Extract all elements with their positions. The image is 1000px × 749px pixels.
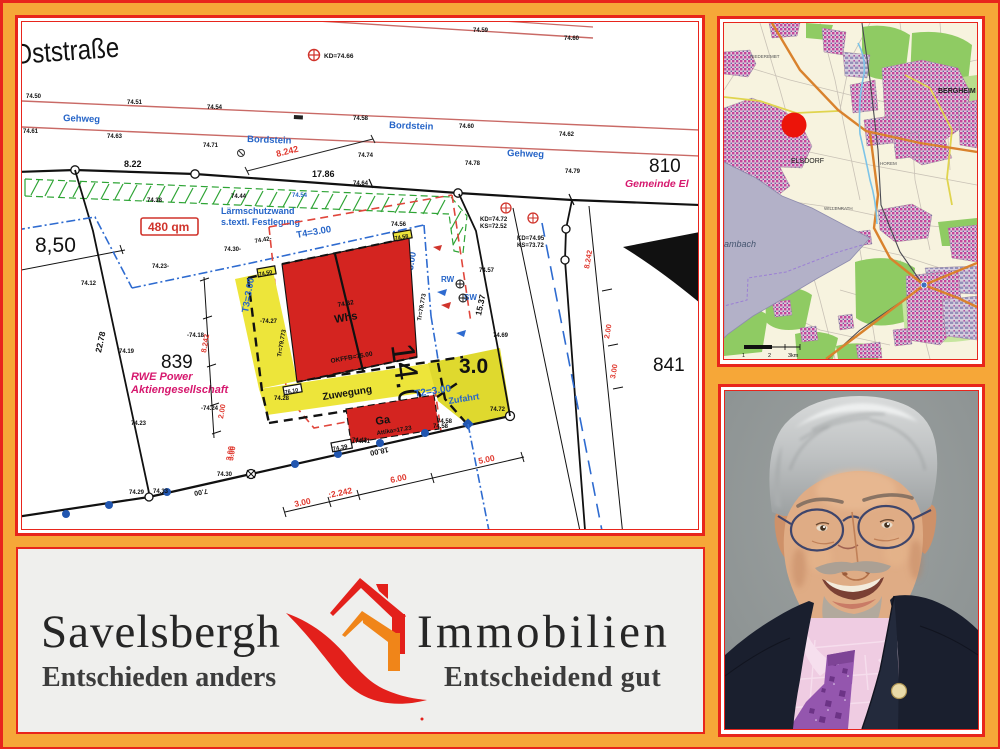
svg-text:HOREM: HOREM <box>880 161 897 166</box>
svg-text:74.72: 74.72 <box>490 407 506 413</box>
svg-text:74.71: 74.71 <box>203 143 219 149</box>
svg-text:KD=74.72: KD=74.72 <box>480 217 508 223</box>
svg-text:74.28: 74.28 <box>274 396 290 402</box>
svg-text:BERGHEIM: BERGHEIM <box>938 88 976 95</box>
svg-text:8.22: 8.22 <box>124 159 142 169</box>
svg-text:74.33: 74.33 <box>153 489 169 495</box>
svg-text:480 qm: 480 qm <box>148 220 189 234</box>
svg-text:s.textl. Festlegung: s.textl. Festlegung <box>221 217 300 227</box>
svg-text:17.86: 17.86 <box>312 169 335 179</box>
svg-text:74.54: 74.54 <box>207 105 223 111</box>
svg-text:74.30: 74.30 <box>217 472 233 478</box>
svg-text:ambach: ambach <box>724 239 756 249</box>
svg-text:839: 839 <box>161 352 193 373</box>
svg-text:RWE Power: RWE Power <box>131 371 193 383</box>
svg-text:WILLENRATH: WILLENRATH <box>824 206 853 211</box>
svg-text:74.78: 74.78 <box>465 161 481 167</box>
svg-text:74.38: 74.38 <box>147 198 163 204</box>
svg-text:Lärmschutzwand: Lärmschutzwand <box>221 206 295 216</box>
svg-text:Gemeinde El: Gemeinde El <box>625 178 690 190</box>
svg-text:74.59: 74.59 <box>473 28 489 34</box>
svg-text:Gehweg: Gehweg <box>507 148 545 160</box>
svg-text:74.12: 74.12 <box>81 281 97 287</box>
svg-text:74.57: 74.57 <box>479 268 495 274</box>
svg-text:KS=72.52: KS=72.52 <box>480 224 508 230</box>
svg-text:74.62: 74.62 <box>559 132 575 138</box>
svg-text:2: 2 <box>768 353 771 359</box>
svg-text:8,50: 8,50 <box>35 234 76 257</box>
svg-text:ELSDORF: ELSDORF <box>791 158 824 165</box>
svg-text:RW: RW <box>441 275 455 284</box>
svg-text:74.43: 74.43 <box>352 438 368 444</box>
svg-text:Bordstein: Bordstein <box>247 134 292 147</box>
svg-text:810: 810 <box>649 156 681 177</box>
svg-text:Ga: Ga <box>375 414 392 428</box>
svg-text:74.29: 74.29 <box>129 490 145 496</box>
svg-text:3km: 3km <box>788 353 799 359</box>
svg-text:NIEDEREMBT: NIEDEREMBT <box>750 54 780 59</box>
svg-text:Gehweg: Gehweg <box>63 113 101 125</box>
svg-text:-74.27: -74.27 <box>260 319 278 325</box>
svg-text:74.23: 74.23 <box>131 421 147 427</box>
svg-text:841: 841 <box>653 355 685 376</box>
svg-text:74.54: 74.54 <box>292 193 308 199</box>
svg-text:KD=74.66: KD=74.66 <box>324 53 354 60</box>
svg-text:3.0: 3.0 <box>459 355 488 378</box>
svg-text:-74.24: -74.24 <box>201 406 219 412</box>
svg-text:74.51: 74.51 <box>127 100 143 106</box>
svg-text:KD=74.95: KD=74.95 <box>517 236 545 242</box>
svg-text:74.58: 74.58 <box>437 419 453 425</box>
svg-text:74.60: 74.60 <box>459 124 475 130</box>
svg-text:Bordstein: Bordstein <box>389 120 434 133</box>
svg-text:74.63: 74.63 <box>107 134 123 140</box>
svg-text:74.61: 74.61 <box>23 129 39 135</box>
svg-text:74.44: 74.44 <box>231 194 247 200</box>
svg-text:1: 1 <box>742 353 745 359</box>
svg-text:74.50: 74.50 <box>26 94 42 100</box>
svg-text:74.23-: 74.23- <box>152 264 169 270</box>
svg-text:74.56: 74.56 <box>391 222 407 228</box>
svg-text:74.58: 74.58 <box>353 116 369 122</box>
svg-text:74.60: 74.60 <box>564 36 580 42</box>
svg-text:74.19: 74.19 <box>119 349 135 355</box>
svg-text:74.30-: 74.30- <box>224 247 241 253</box>
svg-text:74.64: 74.64 <box>353 181 369 187</box>
svg-text:74.79: 74.79 <box>565 169 581 175</box>
svg-text:74.74: 74.74 <box>358 153 374 159</box>
svg-text:Aktiengesellschaft: Aktiengesellschaft <box>130 384 230 396</box>
svg-text:74.69: 74.69 <box>493 333 509 339</box>
